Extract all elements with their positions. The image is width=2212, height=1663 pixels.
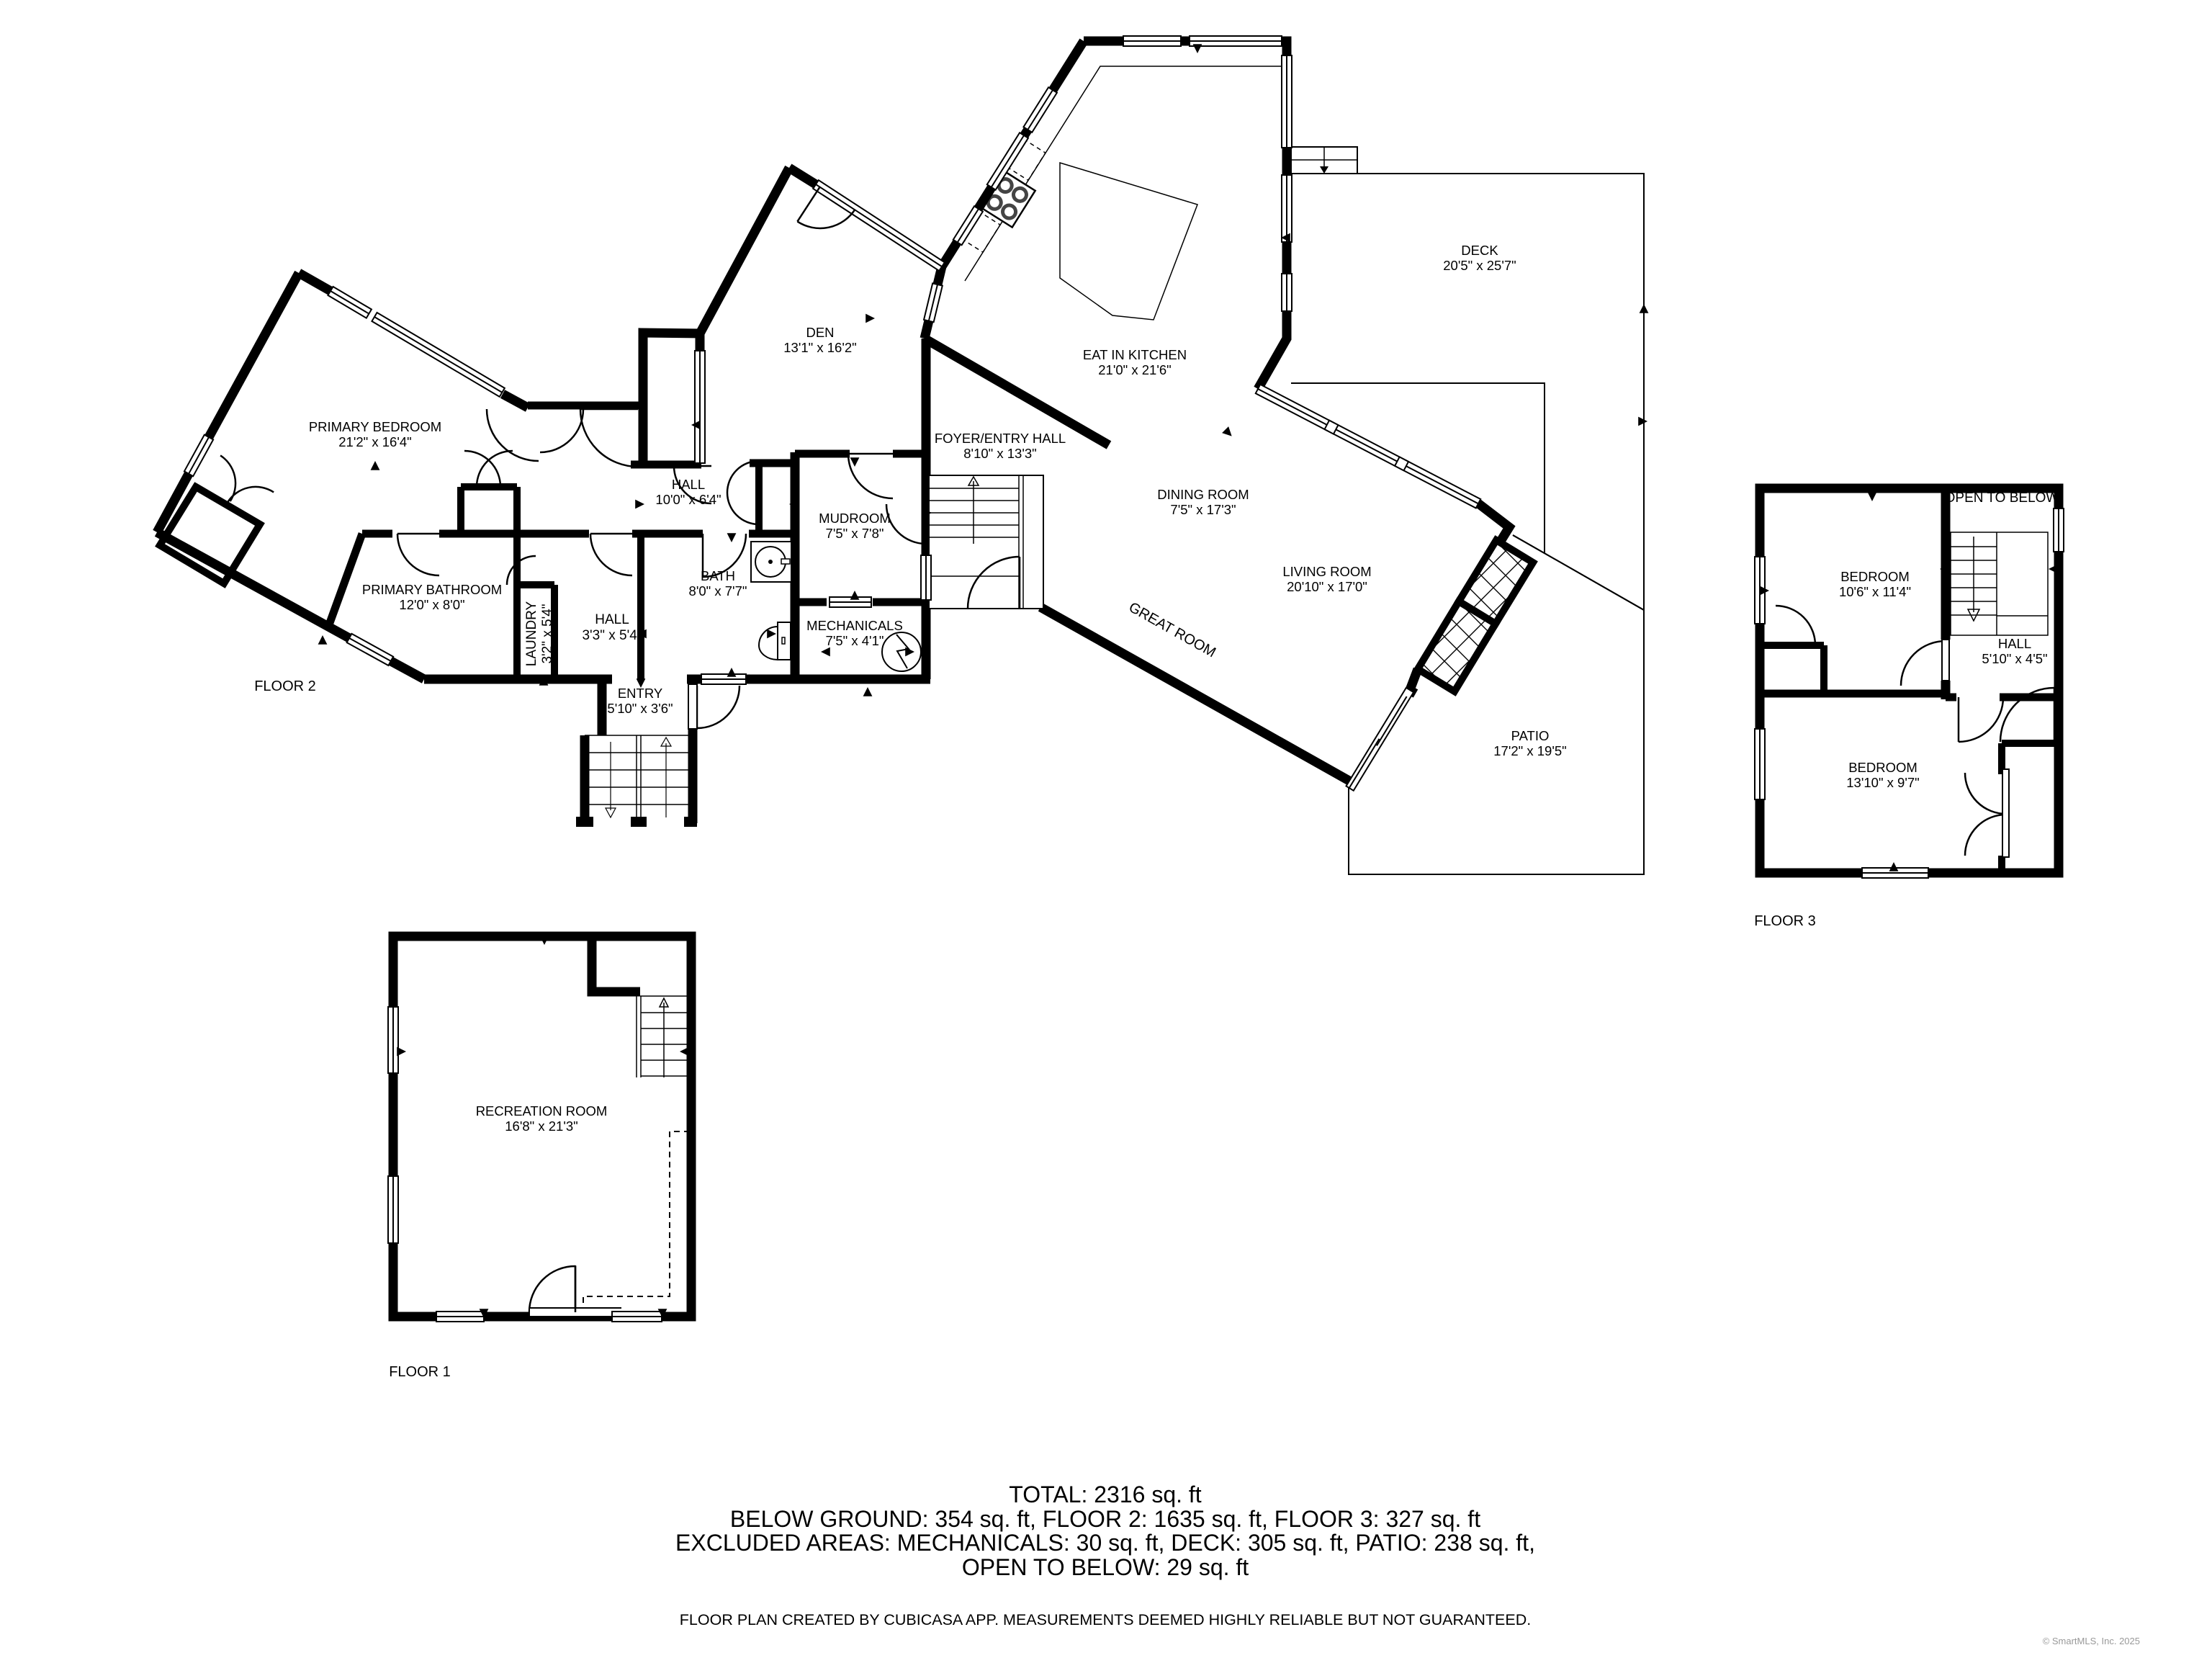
svg-text:PRIMARY BATHROOM: PRIMARY BATHROOM: [362, 582, 502, 597]
svg-text:© SmartMLS, Inc. 2025: © SmartMLS, Inc. 2025: [2043, 1636, 2140, 1646]
svg-text:20'10" x 17'0": 20'10" x 17'0": [1287, 579, 1367, 594]
svg-text:13'1" x 16'2": 13'1" x 16'2": [783, 340, 856, 355]
svg-text:5'10" x 3'6": 5'10" x 3'6": [607, 701, 673, 716]
svg-text:FLOOR 3: FLOOR 3: [1754, 913, 1816, 929]
svg-text:FOYER/ENTRY HALL: FOYER/ENTRY HALL: [935, 431, 1066, 446]
svg-text:DECK: DECK: [1461, 243, 1498, 258]
svg-text:16'8" x 21'3": 16'8" x 21'3": [505, 1119, 577, 1134]
svg-text:LAUNDRY: LAUNDRY: [524, 601, 539, 666]
svg-text:BATH: BATH: [701, 568, 735, 583]
svg-text:13'10" x 9'7": 13'10" x 9'7": [1846, 775, 1919, 790]
svg-text:DINING ROOM: DINING ROOM: [1157, 487, 1249, 502]
svg-text:BEDROOM: BEDROOM: [1848, 760, 1917, 775]
svg-text:PATIO: PATIO: [1511, 728, 1550, 743]
svg-text:10'0" x 6'4": 10'0" x 6'4": [655, 492, 721, 507]
svg-text:17'2" x 19'5": 17'2" x 19'5": [1493, 743, 1566, 758]
svg-text:20'5" x 25'7": 20'5" x 25'7": [1443, 258, 1516, 273]
svg-text:7'5" x 17'3": 7'5" x 17'3": [1170, 502, 1236, 517]
svg-text:ENTRY: ENTRY: [618, 686, 662, 701]
svg-text:BELOW GROUND: 354 sq. ft, FLOO: BELOW GROUND: 354 sq. ft, FLOOR 2: 1635 …: [730, 1506, 1480, 1532]
svg-text:21'0" x 21'6": 21'0" x 21'6": [1098, 362, 1171, 377]
svg-text:FLOOR 2: FLOOR 2: [254, 678, 316, 694]
svg-text:BEDROOM: BEDROOM: [1840, 569, 1910, 584]
svg-text:7'5" x 4'1": 7'5" x 4'1": [826, 633, 884, 648]
svg-text:EAT IN KITCHEN: EAT IN KITCHEN: [1083, 347, 1187, 362]
svg-text:5'10" x 4'5": 5'10" x 4'5": [1982, 651, 2047, 666]
svg-text:7'5" x 7'8": 7'5" x 7'8": [826, 526, 884, 541]
svg-text:MECHANICALS: MECHANICALS: [806, 618, 903, 633]
svg-text:PRIMARY BEDROOM: PRIMARY BEDROOM: [309, 419, 441, 434]
svg-text:12'0" x 8'0": 12'0" x 8'0": [399, 597, 464, 612]
svg-text:8'10" x 13'3": 8'10" x 13'3": [963, 446, 1036, 461]
svg-text:HALL: HALL: [672, 477, 705, 492]
svg-text:FLOOR PLAN CREATED BY CUBICASA: FLOOR PLAN CREATED BY CUBICASA APP. MEAS…: [680, 1611, 1531, 1628]
svg-text:EXCLUDED AREAS: MECHANICALS: 3: EXCLUDED AREAS: MECHANICALS: 30 sq. ft, …: [675, 1530, 1535, 1556]
svg-text:8'0" x 7'7": 8'0" x 7'7": [689, 583, 747, 599]
svg-text:HALL: HALL: [595, 612, 629, 627]
svg-text:DEN: DEN: [806, 325, 834, 340]
svg-text:3'3" x 5'4": 3'3" x 5'4": [582, 628, 642, 643]
svg-text:TOTAL: 2316 sq. ft: TOTAL: 2316 sq. ft: [1009, 1482, 1202, 1507]
svg-text:HALL: HALL: [1998, 636, 2031, 651]
svg-text:10'6" x 11'4": 10'6" x 11'4": [1839, 584, 1911, 599]
svg-text:OPEN TO BELOW: 29 sq. ft: OPEN TO BELOW: 29 sq. ft: [962, 1554, 1249, 1580]
svg-text:RECREATION ROOM: RECREATION ROOM: [476, 1103, 608, 1119]
svg-text:OPEN TO BELOW: OPEN TO BELOW: [1945, 490, 2059, 506]
svg-text:FLOOR 1: FLOOR 1: [389, 1364, 451, 1380]
svg-text:LIVING ROOM: LIVING ROOM: [1282, 564, 1371, 579]
svg-text:MUDROOM: MUDROOM: [819, 511, 891, 526]
svg-text:3'2" x 5'4": 3'2" x 5'4": [540, 604, 555, 663]
svg-text:21'2" x 16'4": 21'2" x 16'4": [338, 434, 411, 449]
